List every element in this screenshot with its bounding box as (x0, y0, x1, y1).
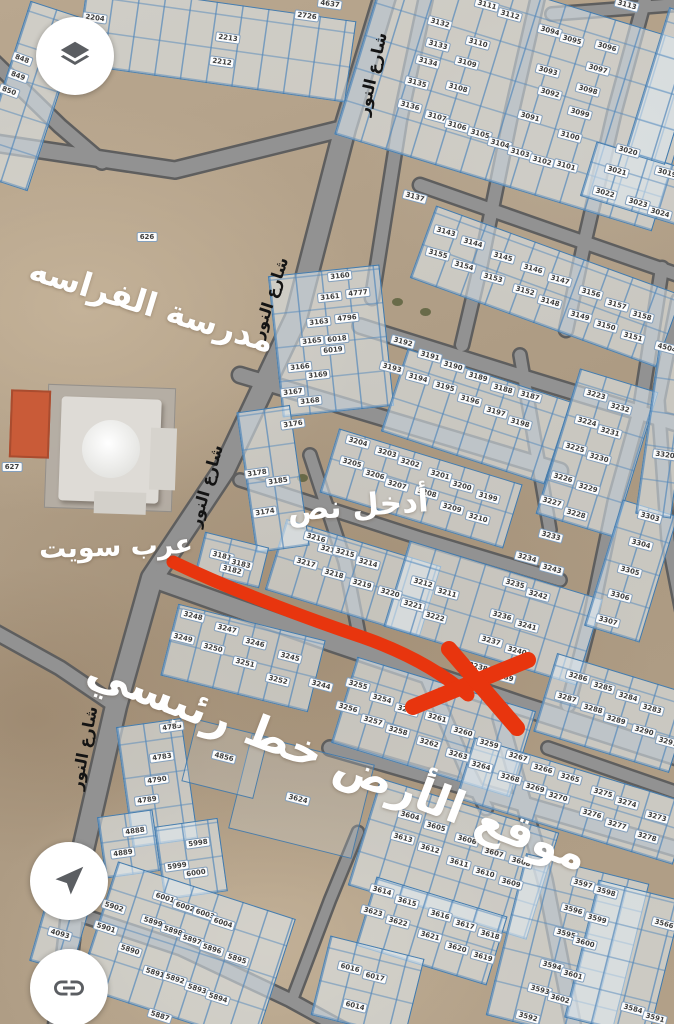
arab-sweet-annotation: عرب سويت (39, 529, 194, 565)
navigation-arrow-icon (51, 863, 87, 899)
red-route-line (173, 562, 468, 695)
layers-icon (57, 38, 93, 74)
link-icon (51, 970, 87, 1006)
link-button[interactable] (30, 949, 108, 1024)
navigate-button[interactable] (30, 842, 108, 920)
map-screenshot: 8488498502204221322122726463762662731113… (0, 0, 674, 1024)
layers-button[interactable] (36, 17, 114, 95)
